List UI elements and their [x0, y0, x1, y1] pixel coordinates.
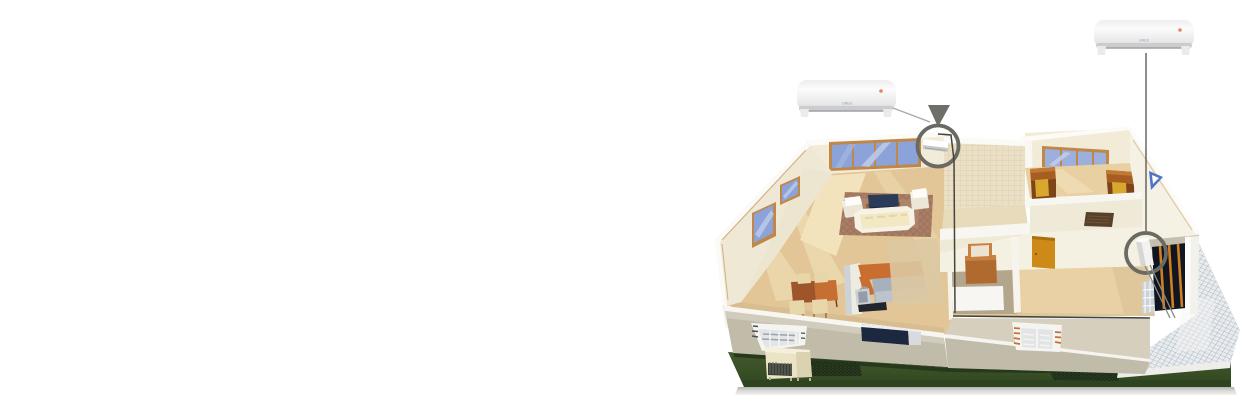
svg-text:GREE: GREE: [1139, 39, 1150, 43]
svg-text:GREE: GREE: [842, 102, 853, 106]
